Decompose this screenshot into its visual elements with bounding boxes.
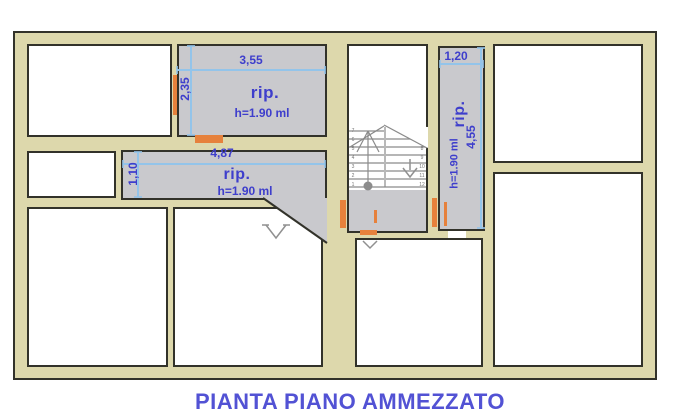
storage-top-height-note: h=1.90 ml bbox=[212, 107, 312, 119]
plan-title: PIANTA PIANO AMMEZZATO bbox=[0, 389, 700, 415]
floor-plan-canvas: 1 2 3 4 5 6 7 8 9 10 11 12 bbox=[0, 0, 700, 420]
door-marker-landing-right bbox=[432, 198, 437, 227]
room-bottom-left bbox=[27, 207, 168, 367]
dimension-label-487: 4,87 bbox=[197, 147, 247, 159]
dimension-label-110: 1,10 bbox=[127, 149, 139, 199]
door-leaf-marker-2 bbox=[444, 202, 447, 226]
room-bottom-right bbox=[493, 172, 643, 367]
storage-top-label: rip. bbox=[215, 84, 315, 101]
dimension-label-455: 4,55 bbox=[465, 112, 477, 162]
stair-hall bbox=[347, 44, 428, 190]
room-bottom-center-left bbox=[173, 207, 323, 367]
dimension-label-235: 2,35 bbox=[179, 64, 191, 114]
door-marker-storage-top-bottom bbox=[195, 135, 223, 143]
wall-opening-bottom-center bbox=[448, 231, 466, 238]
room-top-left bbox=[27, 44, 172, 137]
door-leaf-marker-1 bbox=[374, 210, 377, 223]
dimension-label-120: 1,20 bbox=[431, 50, 481, 62]
dimension-label-355: 3,55 bbox=[226, 54, 276, 66]
door-marker-storage-top-left bbox=[173, 75, 177, 115]
door-marker-landing-bottom bbox=[360, 230, 377, 235]
door-marker-landing-left bbox=[340, 200, 346, 228]
room-mid-left bbox=[27, 151, 116, 198]
storage-corridor-height-note: h=1.90 ml bbox=[195, 185, 295, 197]
stair-landing bbox=[347, 190, 428, 233]
storage-vertical-height-note: h=1.90 ml bbox=[450, 114, 461, 214]
storage-corridor-label: rip. bbox=[187, 167, 287, 183]
room-bottom-center bbox=[355, 238, 483, 367]
room-top-right bbox=[493, 44, 643, 163]
